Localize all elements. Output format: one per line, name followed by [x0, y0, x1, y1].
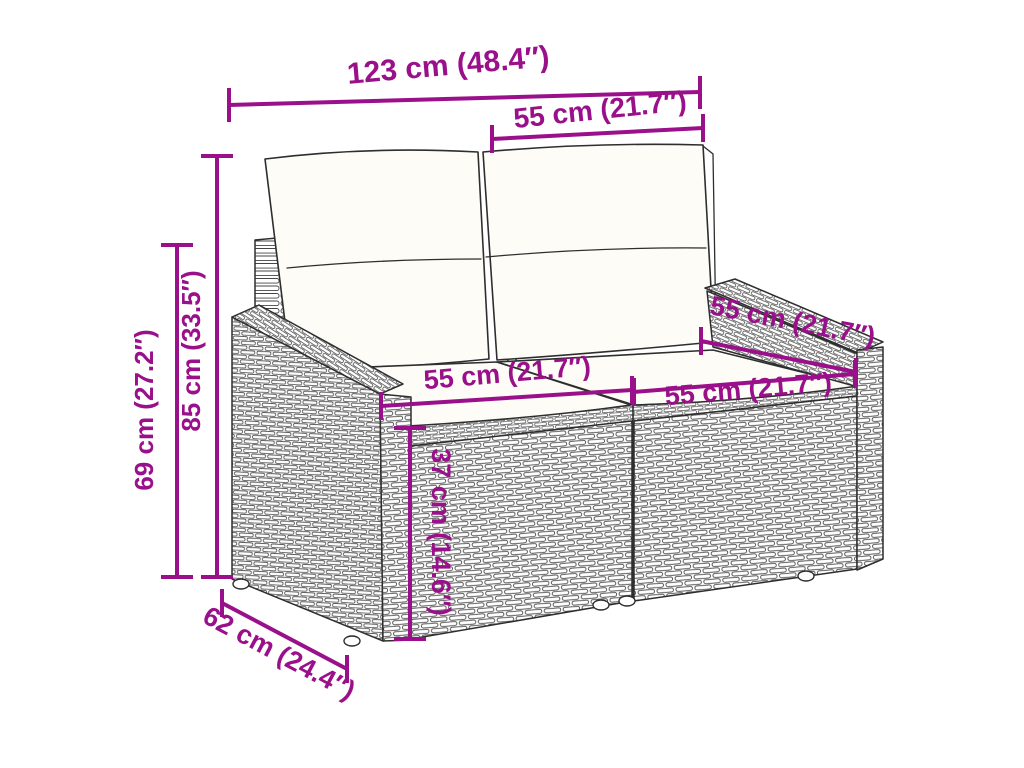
armrest-right-outer-face	[857, 347, 883, 570]
foot	[344, 636, 360, 646]
base-front-right-module	[634, 396, 857, 601]
foot	[798, 571, 814, 581]
dim-total-height: 85 cm (33.5″)	[176, 156, 233, 577]
dim-label-total-width: 123 cm (48.4″)	[346, 40, 551, 91]
foot	[593, 600, 609, 610]
armrest-left-front	[380, 394, 411, 641]
foot	[233, 579, 249, 589]
product-dimension-diagram: 123 cm (48.4″) 55 cm (21.7″) 85 cm (33.5…	[0, 0, 1024, 768]
dim-label-back-height: 69 cm (27.2″)	[129, 329, 159, 490]
backrest-cushion-right	[483, 144, 714, 360]
sofa-line-drawing: 123 cm (48.4″) 55 cm (21.7″) 85 cm (33.5…	[0, 0, 1024, 768]
dim-label-back-seat-width: 55 cm (21.7″)	[512, 85, 688, 134]
backrest-cushions	[265, 144, 716, 371]
foot	[619, 596, 635, 606]
dim-label-seat-height: 37 cm (14.6″)	[426, 448, 456, 616]
dim-label-total-height: 85 cm (33.5″)	[176, 270, 206, 431]
